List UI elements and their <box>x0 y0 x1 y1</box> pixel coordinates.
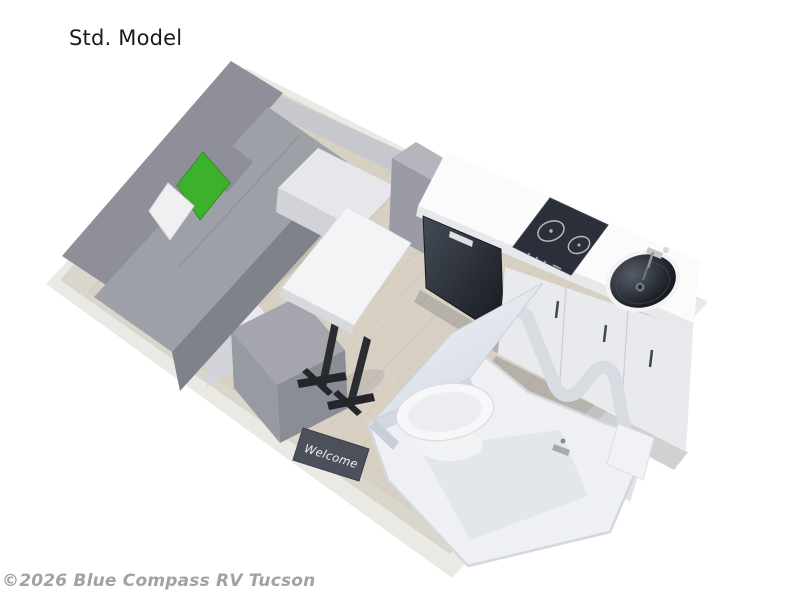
watermark: ©2026 Blue Compass RV Tucson <box>2 571 315 591</box>
cooktop-control-1 <box>528 253 530 255</box>
shower-faucet-knob <box>561 439 566 444</box>
burner-right-dot <box>578 244 581 247</box>
sink-faucet-knob <box>663 247 669 253</box>
cooktop-control-3 <box>544 261 546 263</box>
floorplan-render: Welcome <box>0 0 800 600</box>
cooktop-control-2 <box>536 257 538 259</box>
burner-left-dot <box>549 229 552 232</box>
sink-drain-hole <box>638 285 642 289</box>
floorplan-screenshot: Std. Model <box>0 0 800 600</box>
